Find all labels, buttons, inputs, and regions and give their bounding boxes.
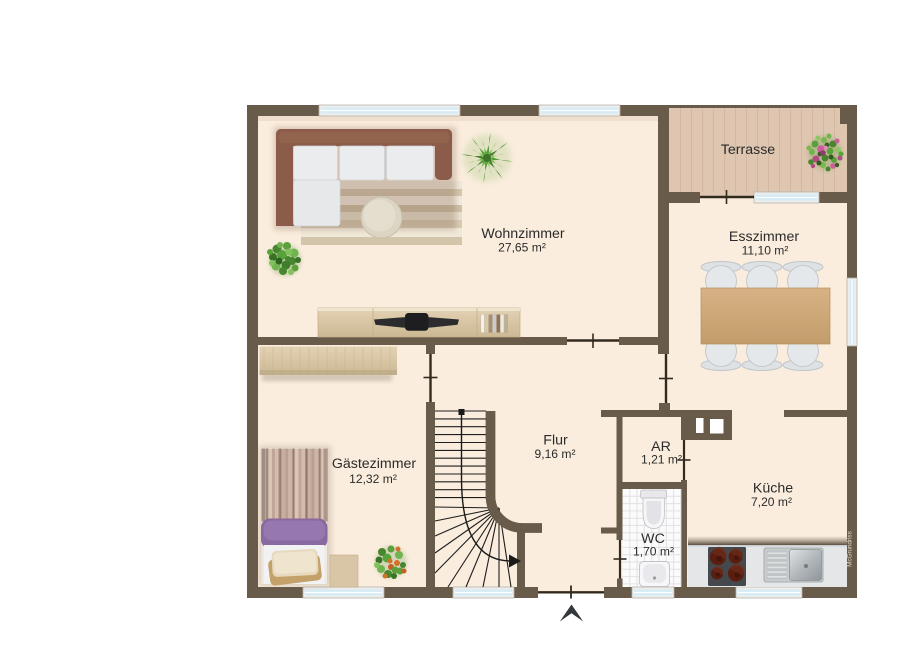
svg-text:11,10 m²: 11,10 m² — [742, 244, 789, 258]
svg-text:McGrundriss: McGrundriss — [847, 531, 854, 567]
svg-text:9,16 m²: 9,16 m² — [535, 447, 576, 461]
svg-text:27,65 m²: 27,65 m² — [498, 241, 546, 255]
svg-text:12,32 m²: 12,32 m² — [349, 472, 397, 486]
svg-text:Terrasse: Terrasse — [721, 142, 776, 158]
svg-text:Gästezimmer: Gästezimmer — [332, 456, 417, 472]
svg-text:7,20 m²: 7,20 m² — [751, 495, 792, 509]
svg-text:1,70 m²: 1,70 m² — [633, 545, 674, 559]
svg-text:1,21 m²: 1,21 m² — [641, 453, 682, 467]
